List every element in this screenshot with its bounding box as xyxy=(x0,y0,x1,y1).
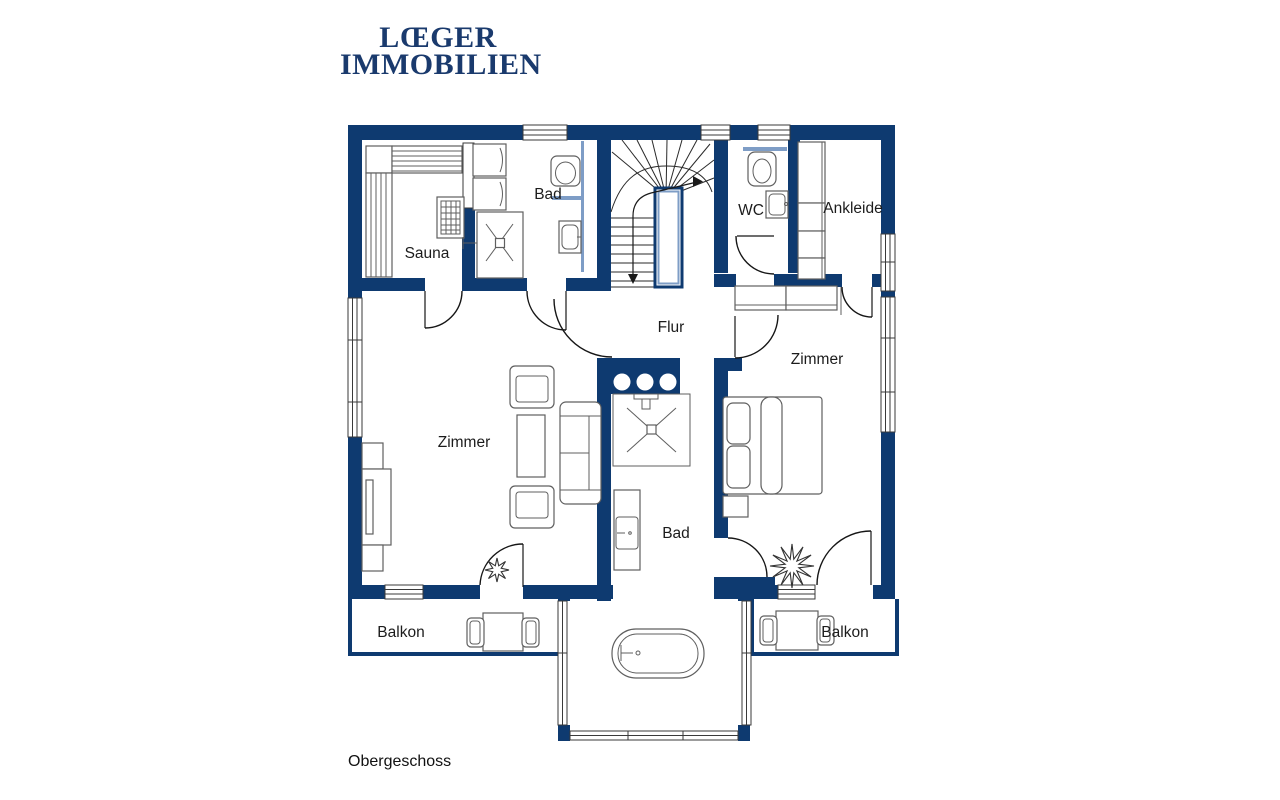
room-label-sauna: Sauna xyxy=(405,245,450,262)
sauna-bench-top xyxy=(392,146,462,173)
toilet xyxy=(551,156,580,186)
floor-label: Obergeschoss xyxy=(348,753,451,771)
zimmer-links-furniture xyxy=(362,366,601,571)
balkon-links-furniture xyxy=(467,613,539,651)
door-flur-zimmer-rechts xyxy=(735,315,778,358)
room-label-zimmer-links: Zimmer xyxy=(438,434,491,451)
window-bottom-right-zimmer xyxy=(778,585,815,599)
dryer xyxy=(473,178,506,210)
coffee-table xyxy=(517,415,545,477)
toilet xyxy=(748,152,776,186)
door-flur-zimmer-links xyxy=(554,299,612,357)
balcony-chair xyxy=(522,618,539,647)
armchair xyxy=(510,366,554,408)
room-label-wc: WC xyxy=(738,202,764,219)
shower xyxy=(613,394,690,466)
balcony-table xyxy=(483,613,523,651)
vanity xyxy=(614,490,640,570)
room-label-bad-top: Bad xyxy=(534,186,562,203)
window-right-zimmer xyxy=(881,297,895,432)
sink xyxy=(559,221,581,253)
sauna-bench-corner xyxy=(366,146,392,173)
window-right-ankleide xyxy=(881,234,895,291)
balcony-chair xyxy=(467,618,484,647)
sideboard xyxy=(735,286,837,310)
window-left-zimmer xyxy=(348,298,362,437)
plant-icon xyxy=(485,558,509,582)
floorplan-page: LŒGER IMMOBILIEN xyxy=(0,0,1280,800)
bad-mitte-fixtures xyxy=(612,394,704,678)
window-top-stairs xyxy=(701,125,730,140)
window-top-wc xyxy=(758,125,790,140)
door-wc xyxy=(736,236,774,274)
stair-void xyxy=(655,188,682,287)
staircase xyxy=(611,140,714,287)
zimmer-rechts-furniture xyxy=(723,286,837,517)
room-label-flur: Flur xyxy=(658,319,685,336)
window-top-bad xyxy=(523,125,567,140)
bed xyxy=(723,397,822,494)
door-balkon-rechts xyxy=(817,531,871,585)
balcony-table xyxy=(776,611,818,650)
sink xyxy=(766,191,788,218)
door-bad-mitte-zimmer xyxy=(728,538,767,577)
sauna-heater xyxy=(437,197,464,238)
tv-board xyxy=(362,443,391,571)
bathtub xyxy=(612,629,704,678)
nightstand xyxy=(723,496,748,517)
room-label-balkon-links: Balkon xyxy=(377,624,424,641)
sauna-glass-front xyxy=(463,143,474,208)
door-sauna xyxy=(425,291,462,328)
bad-top-fixtures xyxy=(463,144,581,278)
room-label-ankleide: Ankleide xyxy=(823,200,882,217)
balcony-chair xyxy=(760,616,777,645)
sofa xyxy=(560,402,601,504)
room-label-bad-mitte: Bad xyxy=(662,525,690,542)
door-ankleide xyxy=(841,287,872,317)
plant-icon-large xyxy=(770,544,814,588)
washer xyxy=(473,144,506,176)
armchair xyxy=(510,486,554,528)
sauna-bench-left xyxy=(366,173,392,277)
room-label-balkon-rechts: Balkon xyxy=(821,624,868,641)
room-label-zimmer-rechts: Zimmer xyxy=(791,351,844,368)
window-bottom-left-zimmer xyxy=(385,585,423,599)
ankleide-wardrobes xyxy=(798,142,825,279)
faucet xyxy=(634,394,658,409)
floorplan-drawing: Sauna Bad WC Ankleide Flur Zimmer Zimmer… xyxy=(0,0,1280,800)
